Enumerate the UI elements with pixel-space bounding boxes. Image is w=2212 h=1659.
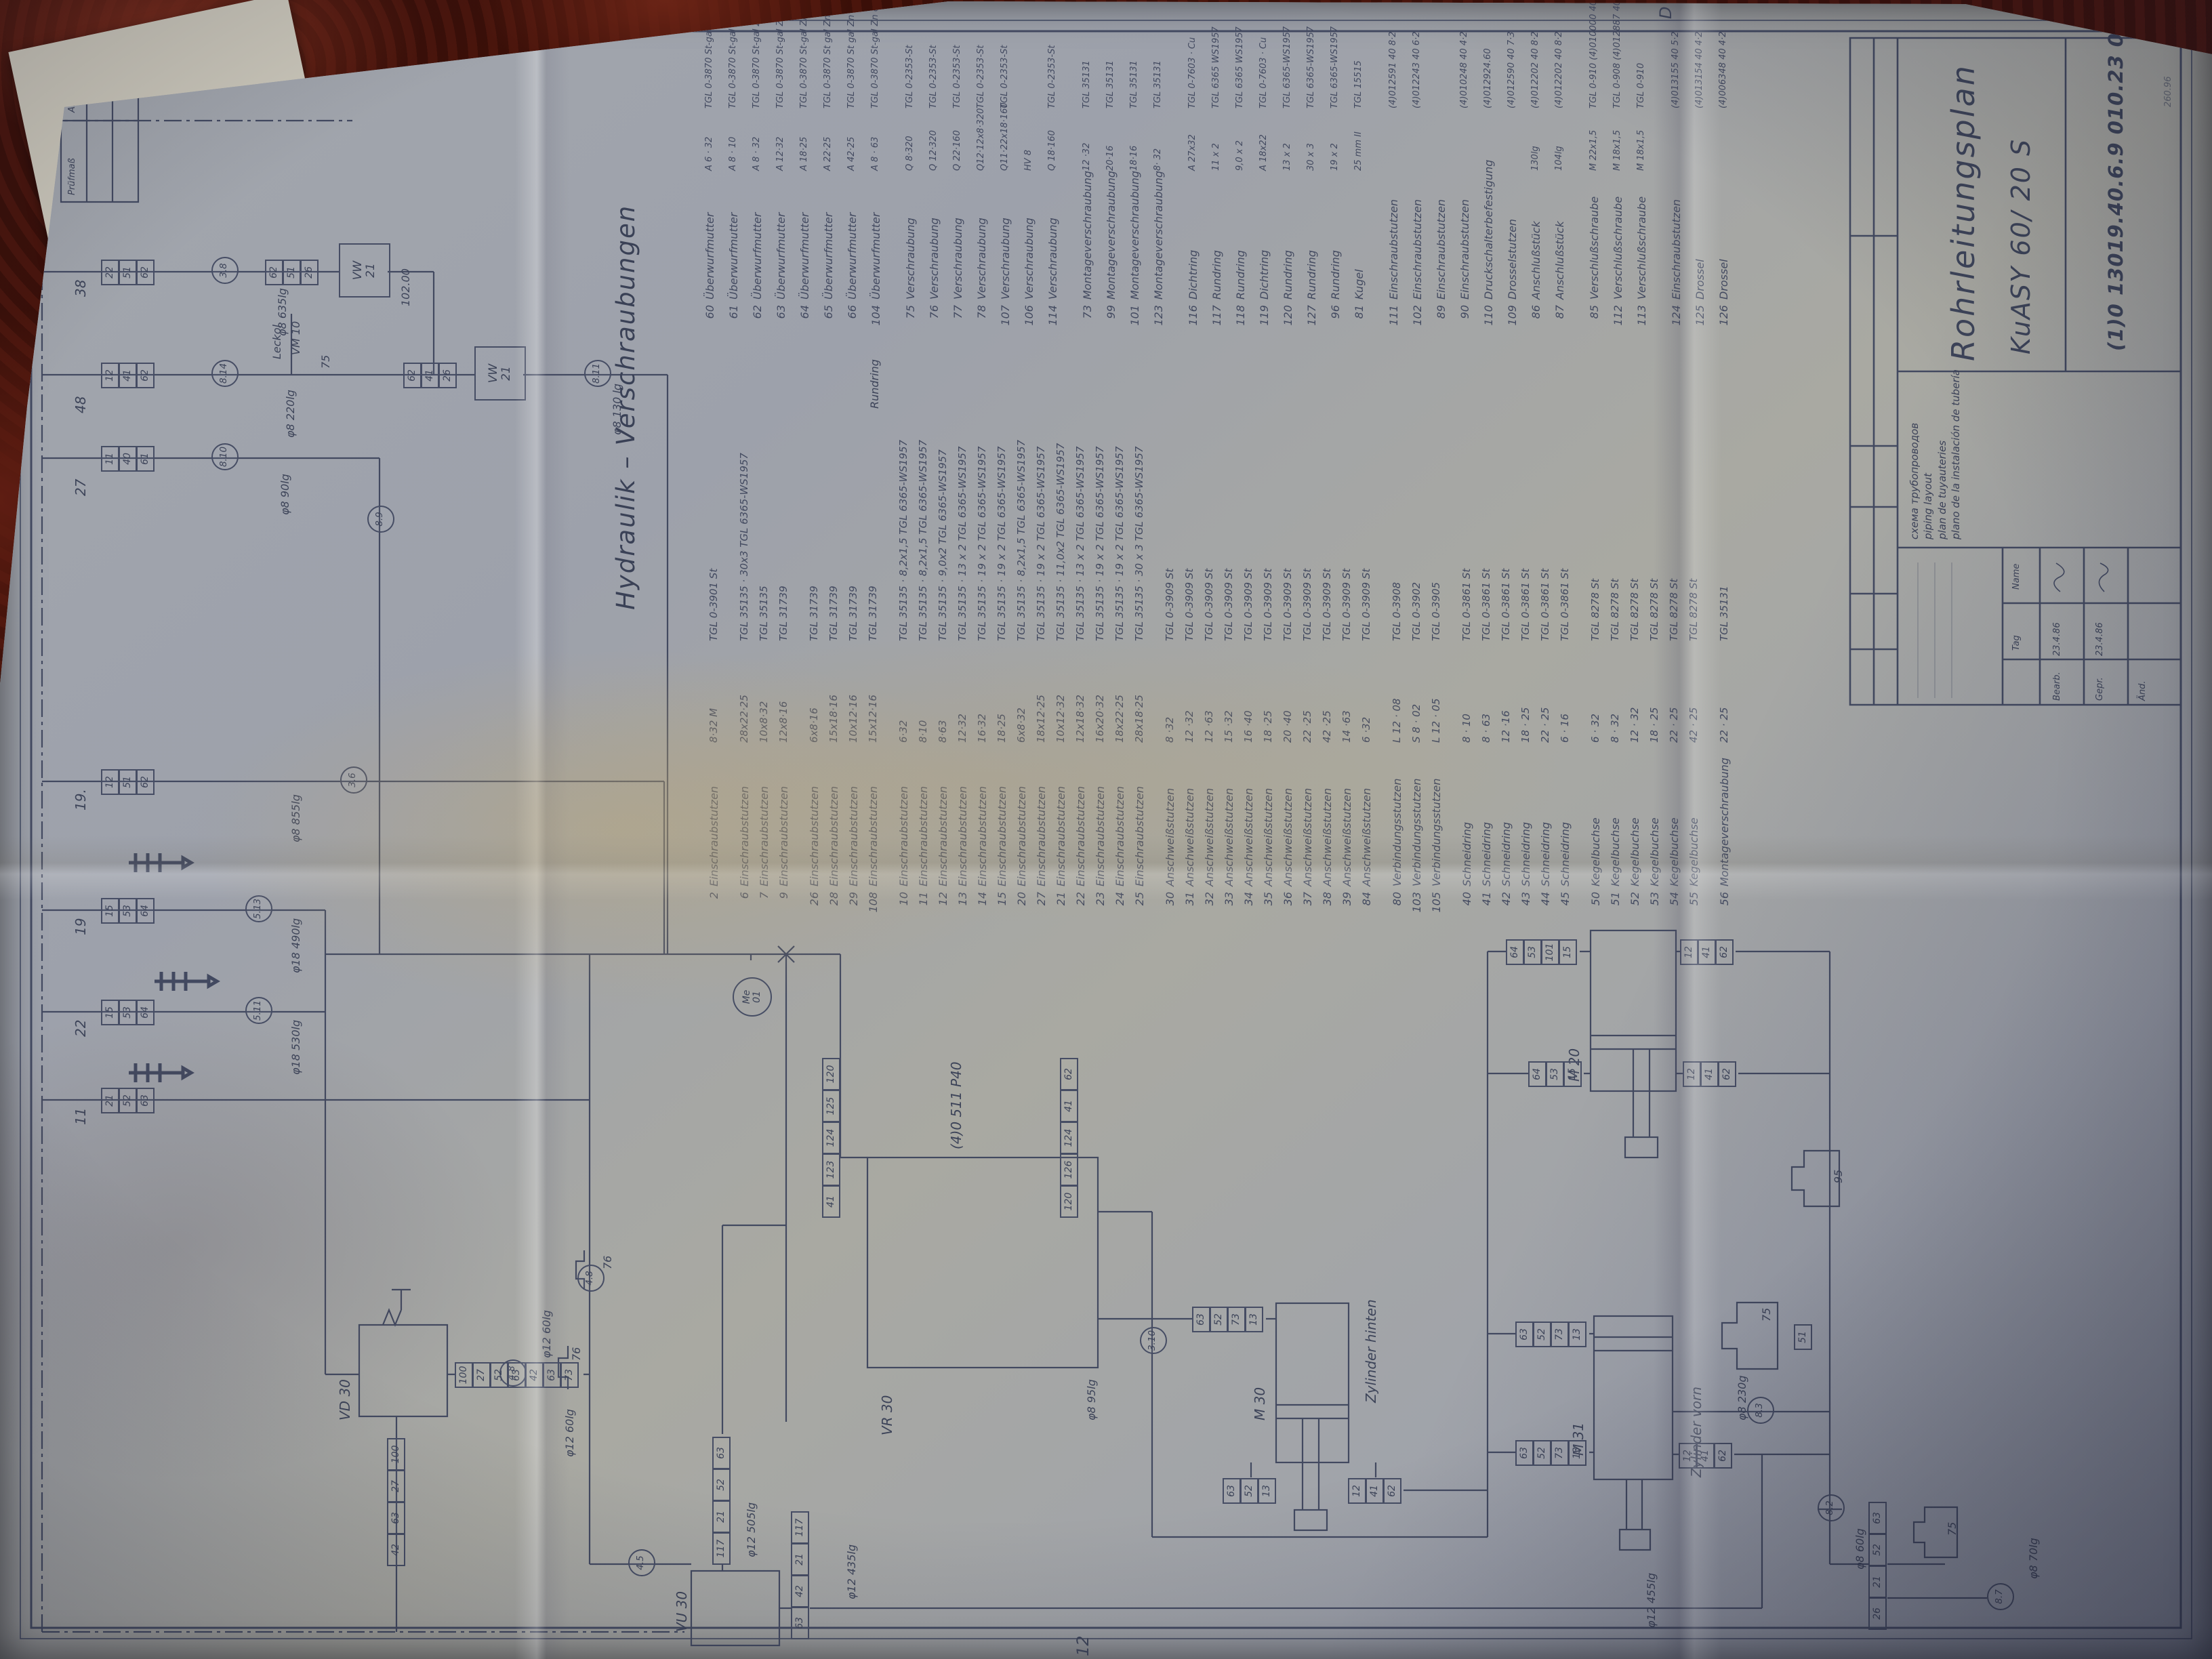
mini-table-col1: Prüfmaß <box>68 158 78 195</box>
component-label-vu-30: VU 30 <box>674 1591 690 1632</box>
fitting-tag-62: 62 <box>136 769 155 795</box>
drawing-rotated-content: Hydraulik – Verschraubungen Prüfmaß Abma… <box>0 0 2212 1659</box>
fitting-tag-41: 41 <box>421 363 439 388</box>
title-intl-list: схема трубопроводовpiping layoutplan de … <box>1908 369 1963 539</box>
fitting-cluster-24: 124162 <box>1683 1061 1736 1086</box>
fitting-tag-12: 12 <box>1683 1061 1701 1087</box>
port-label-11: 11 <box>73 1108 89 1125</box>
fitting-cluster-25: 51 <box>1795 1324 1812 1349</box>
fitting-tag-27: 27 <box>472 1362 491 1388</box>
fitting-tag-41: 41 <box>1698 939 1716 965</box>
fitting-cluster-19: 63527313 <box>1516 1440 1586 1465</box>
fitting-tag-41: 41 <box>1060 1090 1078 1122</box>
pipe-label-21: 75 <box>320 355 332 369</box>
fitting-tag-124: 124 <box>822 1122 840 1154</box>
fitting-tag-51: 51 <box>119 260 137 285</box>
component-label-vr-30: VR 30 <box>880 1395 895 1435</box>
fitting-tag-13: 13 <box>1245 1307 1263 1332</box>
pipe-label-20: 76 <box>602 1256 614 1269</box>
pipe-label-24: 75 <box>1946 1522 1959 1536</box>
fitting-cluster-7: 625126 <box>266 260 319 285</box>
balloon-3.6: 3.6 <box>340 766 367 794</box>
pipe-label-17: VM 10 <box>290 321 302 355</box>
fitting-tag-64: 64 <box>136 898 155 924</box>
fitting-tag-41: 41 <box>1696 1443 1715 1469</box>
fitting-tag-12: 12 <box>1348 1478 1366 1504</box>
fitting-tag-120: 120 <box>822 1058 840 1090</box>
fitting-tag-41: 41 <box>822 1185 840 1218</box>
fitting-cluster-15: 63527313 <box>1193 1307 1263 1332</box>
fitting-tag-21: 21 <box>791 1543 809 1576</box>
fitting-tag-64: 64 <box>1528 1061 1547 1087</box>
pipe-label-13: φ8 60lg <box>1854 1528 1866 1570</box>
fitting-tag-73: 73 <box>1227 1307 1246 1332</box>
pipe-label-19: 76 <box>571 1347 583 1361</box>
fitting-tag-63: 63 <box>387 1502 405 1534</box>
fitting-cluster-11: 117215263 <box>713 1437 731 1564</box>
balloon-5.13: 5.13 <box>245 895 272 922</box>
fitting-tag-40: 40 <box>119 446 137 472</box>
fitting-tag-61: 61 <box>136 446 155 472</box>
fitting-tag-124: 124 <box>1060 1122 1078 1154</box>
approval-Gepr.: 23.4.86 <box>2095 622 2106 656</box>
balloon-4.8: 4.8 <box>577 1265 605 1292</box>
approval-Bearb.: Bearb. <box>2052 672 2063 701</box>
balloon-8.9: 8.9 <box>367 506 394 533</box>
fitting-tag-15: 15 <box>101 898 119 924</box>
fitting-cluster-1: 155364 <box>102 1000 155 1025</box>
balloon-8.14: 8.14 <box>211 360 239 387</box>
measuring-point-me01: Me01 <box>733 977 772 1017</box>
pipe-label-16: Leckol <box>271 325 283 359</box>
component-box-vw21-0: VW21 <box>474 346 526 401</box>
port-label-22: 22 <box>73 1020 89 1037</box>
fitting-tag-52: 52 <box>1240 1478 1258 1504</box>
component-label-m-30: M 30 <box>1252 1387 1268 1420</box>
component-label-vd-30: VD 30 <box>337 1379 353 1420</box>
fitting-cluster-4: 114061 <box>102 446 155 471</box>
fitting-tag-73: 73 <box>560 1362 579 1388</box>
pipe-label-11: φ8 95lg <box>1086 1379 1098 1420</box>
fitting-tag-53: 53 <box>1546 1061 1564 1087</box>
fitting-tag-63: 63 <box>136 1088 155 1113</box>
fitting-tag-63: 63 <box>543 1362 561 1388</box>
pipe-label-15: φ12 455lg <box>1645 1573 1658 1628</box>
fitting-tag-12: 12 <box>101 363 119 388</box>
photo-of-piping-plan: { "heading": "Hydraulik – Verschraubunge… <box>0 0 2212 1659</box>
fitting-tag-63: 63 <box>1192 1307 1210 1332</box>
fitting-tag-42: 42 <box>387 1534 405 1566</box>
title-intl-1: piping layout <box>1921 369 1935 539</box>
pipe-label-3: φ8 90lg <box>279 474 291 515</box>
fitting-tag-63: 63 <box>1515 1322 1534 1347</box>
fitting-cluster-3: 125162 <box>102 769 155 794</box>
fitting-tag-62: 62 <box>136 363 155 388</box>
fitting-tag-15: 15 <box>101 1000 119 1025</box>
fitting-tag-12: 12 <box>1679 1443 1697 1469</box>
fitting-tag-21: 21 <box>712 1500 731 1533</box>
fitting-tag-52: 52 <box>490 1362 508 1388</box>
fitting-cluster-23: 124162 <box>1681 939 1734 964</box>
title-intl-0: схема трубопроводов <box>1908 369 1921 539</box>
fitting-tag-51: 51 <box>119 769 137 795</box>
pipe-label-8: φ12 60lg <box>564 1409 576 1457</box>
fitting-tag-12: 12 <box>101 769 119 795</box>
border-ref-D: D <box>1657 7 1676 19</box>
fitting-tag-62: 62 <box>1383 1478 1401 1504</box>
pipe-label-7: φ12 60lg <box>541 1310 553 1358</box>
fitting-tag-64: 64 <box>136 1000 155 1025</box>
fitting-cluster-12: 634221117 <box>792 1511 809 1639</box>
balloon-5.11: 5.11 <box>245 997 272 1024</box>
fitting-tag-63: 63 <box>508 1362 526 1388</box>
balloon-8.3: 8.3 <box>1747 1397 1774 1424</box>
ring-column-header: Rundring <box>869 359 881 409</box>
approval-col-name: Name <box>2011 564 2022 590</box>
fitting-cluster-2: 155364 <box>102 898 155 923</box>
approval-col-tag: Tag <box>2011 635 2022 651</box>
fitting-tag-21: 21 <box>1868 1565 1887 1598</box>
fitting-tag-52: 52 <box>1533 1322 1551 1347</box>
fitting-tag-52: 52 <box>1210 1307 1228 1332</box>
fitting-cluster-26: 26215263 <box>1869 1502 1887 1629</box>
fitting-tag-63: 63 <box>791 1607 809 1639</box>
pipe-label-18: 102.00 <box>400 268 412 306</box>
approval-Änd.: Änd. <box>2137 680 2148 701</box>
fitting-tag-63: 63 <box>1515 1440 1534 1466</box>
fitting-tag-63: 63 <box>712 1437 731 1469</box>
fitting-tag-73: 73 <box>1551 1322 1569 1347</box>
port-label-38: 38 <box>73 280 89 297</box>
pipe-label-12: φ8 230g <box>1736 1375 1748 1420</box>
fitting-tag-125: 125 <box>822 1090 840 1122</box>
fitting-tag-27: 27 <box>387 1470 405 1502</box>
fitting-cluster-17: 124162 <box>1349 1478 1401 1503</box>
title-main: Rohrleitungsplan <box>1945 64 1982 361</box>
fitting-tag-100: 100 <box>387 1438 405 1471</box>
pipe-label-6: φ18 530lg <box>290 1020 302 1075</box>
fitting-tag-53: 53 <box>119 898 137 924</box>
balloon-3.8: 3.8 <box>211 257 239 284</box>
fitting-tag-62: 62 <box>1060 1058 1078 1090</box>
fitting-tag-13: 13 <box>1258 1478 1276 1504</box>
balloon-8.7: 8.7 <box>1987 1583 2014 1610</box>
fitting-tag-62: 62 <box>136 260 155 285</box>
fitting-tag-101: 101 <box>1541 939 1559 965</box>
fitting-tag-52: 52 <box>1868 1534 1887 1566</box>
fitting-tag-63: 63 <box>1223 1478 1241 1504</box>
pipe-label-14: φ8 70lg <box>2028 1538 2040 1579</box>
fitting-tag-15: 15 <box>1559 939 1577 965</box>
fitting-tag-52: 52 <box>1533 1440 1551 1466</box>
fitting-cluster-20: 124162 <box>1679 1443 1732 1468</box>
fitting-tag-53: 53 <box>1523 939 1542 965</box>
title-product: KuASY 60/ 20 S <box>2006 138 2037 354</box>
fitting-tag-13: 13 <box>1568 1322 1586 1347</box>
fitting-tag-41: 41 <box>119 363 137 388</box>
port-label-19: 19 <box>73 918 89 935</box>
pipe-label-23: 95 <box>1832 1170 1845 1183</box>
fitting-tag-12: 12 <box>1680 939 1698 965</box>
fitting-cluster-8: 624126 <box>404 363 457 388</box>
fitting-tag-117: 117 <box>791 1511 809 1544</box>
component-label-zylinder-hinten: Zylinder hinten <box>1364 1299 1379 1403</box>
fitting-tag-123: 123 <box>822 1153 840 1186</box>
approval-Bearb.: 23.4.86 <box>2052 622 2063 656</box>
fitting-tag-22: 22 <box>101 260 119 285</box>
fitting-tag-62: 62 <box>1715 939 1734 965</box>
fitting-cluster-22: 645315 <box>1529 1061 1582 1086</box>
fitting-cluster-16: 635213 <box>1223 1478 1276 1503</box>
fitting-tag-21: 21 <box>101 1088 119 1113</box>
pipe-label-4: φ8 855lg <box>290 794 302 842</box>
fitting-tag-26: 26 <box>300 260 319 285</box>
pipe-label-9: φ12 435lg <box>846 1544 858 1599</box>
title-intl-3: plano de la instalación de tubería <box>1949 369 1963 539</box>
balloon-8.2: 8.2 <box>1818 1494 1845 1521</box>
fitting-cluster-10: 100275263426373 <box>455 1362 579 1387</box>
fitting-tag-126: 126 <box>1060 1153 1078 1186</box>
balloon-8.10: 8.10 <box>211 443 239 470</box>
fitting-tag-62: 62 <box>265 260 283 285</box>
fitting-tag-63: 63 <box>1868 1502 1887 1534</box>
fitting-tag-26: 26 <box>438 363 457 388</box>
fitting-tag-42: 42 <box>525 1362 544 1388</box>
component-label--4-0-511-p40: (4)0 511 P40 <box>949 1062 964 1149</box>
fitting-tag-42: 42 <box>791 1575 809 1607</box>
fitting-tag-52: 52 <box>119 1088 137 1113</box>
drawing-sheet: Hydraulik – Verschraubungen Prüfmaß Abma… <box>0 0 2212 1659</box>
fitting-cluster-13: 41123124125120 <box>823 1058 840 1217</box>
fitting-tag-73: 73 <box>1551 1440 1569 1466</box>
fitting-tag-51: 51 <box>1794 1324 1812 1350</box>
pipe-label-2: φ8 130 lg <box>611 384 623 435</box>
title-corner-note: 260.96 <box>2163 77 2174 108</box>
fitting-tag-26: 26 <box>1868 1597 1887 1630</box>
pipe-label-10: φ12 505lg <box>745 1502 758 1557</box>
fitting-tag-62: 62 <box>1714 1443 1732 1469</box>
fitting-cluster-5: 124162 <box>102 363 155 388</box>
approval-Gepr.: Gepr. <box>2095 677 2106 701</box>
fitting-tag-62: 62 <box>403 363 422 388</box>
balloon-4.5: 4.5 <box>628 1549 655 1576</box>
pipe-label-5: φ18 490lg <box>290 918 302 973</box>
fitting-tag-52: 52 <box>712 1469 731 1501</box>
fitting-tag-53: 53 <box>119 1000 137 1025</box>
fitting-tag-41: 41 <box>1366 1478 1384 1504</box>
fitting-tag-117: 117 <box>712 1532 731 1565</box>
port-label-48: 48 <box>73 396 89 413</box>
fitting-tag-120: 120 <box>1060 1185 1078 1218</box>
component-box-vw21-1: VW21 <box>339 243 390 298</box>
fitting-tag-100: 100 <box>455 1362 473 1388</box>
fitting-tag-15: 15 <box>1563 1061 1582 1087</box>
pipe-label-22: 75 <box>1761 1308 1773 1322</box>
fitting-cluster-9: 426327100 <box>388 1438 405 1565</box>
port-label-19.: 19. <box>73 789 89 811</box>
fitting-tag-41: 41 <box>1700 1061 1719 1087</box>
fitting-cluster-18: 63527313 <box>1516 1322 1586 1347</box>
port-label-27: 27 <box>73 479 89 496</box>
fitting-cluster-14: 1201261244162 <box>1061 1058 1078 1217</box>
border-ref-12: 12 <box>1074 1635 1093 1656</box>
pipe-label-1: φ8 220lg <box>285 390 297 438</box>
balloon-8.11: 8.11 <box>584 360 611 387</box>
title-drawing-number: (1)0 13019.40.6.9 010.23 0 <box>2104 33 2128 351</box>
balloon-3.10: 3.10 <box>1140 1327 1167 1354</box>
fitting-tag-62: 62 <box>1718 1061 1736 1087</box>
fitting-tag-11: 11 <box>101 446 119 472</box>
fitting-cluster-6: 225162 <box>102 260 155 285</box>
fitting-tag-51: 51 <box>283 260 301 285</box>
fitting-cluster-0: 215263 <box>102 1088 155 1113</box>
fitting-tag-13: 13 <box>1568 1440 1586 1466</box>
fitting-tag-64: 64 <box>1506 939 1524 965</box>
fitting-cluster-21: 645310115 <box>1507 939 1577 964</box>
title-intl-2: plan de tuyauteries <box>1935 369 1949 539</box>
